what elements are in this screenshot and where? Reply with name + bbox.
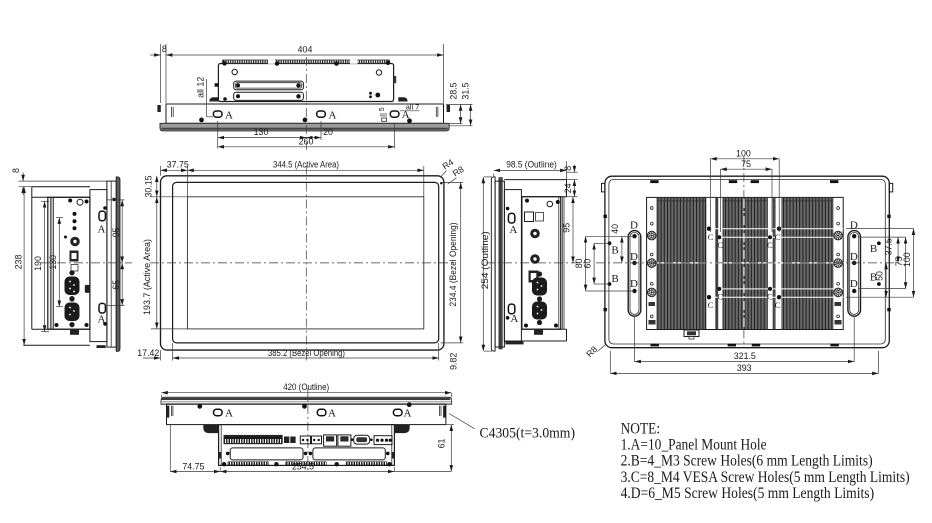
svg-text:4.D=6_M5 Screw Holes(5 mm Leng: 4.D=6_M5 Screw Holes(5 mm Length Limits) (621, 485, 875, 502)
svg-text:8: 8 (162, 44, 167, 54)
svg-text:75: 75 (741, 159, 751, 169)
svg-text:74.75: 74.75 (182, 461, 204, 471)
svg-text:344.5 (Active Area): 344.5 (Active Area) (273, 160, 339, 170)
svg-text:95: 95 (111, 227, 121, 237)
svg-text:260: 260 (299, 136, 314, 146)
svg-text:all 12: all 12 (195, 77, 205, 98)
svg-text:C: C (767, 292, 773, 302)
svg-text:C4305(t=3.0mm): C4305(t=3.0mm) (480, 426, 576, 442)
svg-text:2.B=4_M3 Screw Holes(6 mm Leng: 2.B=4_M3 Screw Holes(6 mm Length Limits) (621, 453, 873, 470)
svg-text:37.75: 37.75 (167, 160, 189, 170)
svg-text:420 (Outline): 420 (Outline) (283, 382, 329, 392)
svg-text:61: 61 (436, 439, 446, 449)
svg-text:C: C (767, 240, 773, 250)
svg-text:130: 130 (254, 127, 269, 137)
svg-text:50: 50 (874, 271, 884, 281)
svg-text:100: 100 (736, 148, 751, 158)
svg-text:D: D (630, 251, 638, 263)
svg-text:31.5: 31.5 (460, 82, 470, 99)
svg-text:28.5: 28.5 (449, 82, 459, 99)
svg-text:8: 8 (563, 166, 573, 171)
svg-text:190: 190 (33, 256, 43, 271)
svg-text:all 7: all 7 (406, 103, 420, 112)
svg-text:17.42: 17.42 (137, 348, 159, 358)
svg-text:254 (Outline): 254 (Outline) (480, 231, 490, 289)
svg-text:254.5: 254.5 (292, 461, 314, 471)
svg-text:60: 60 (582, 259, 592, 269)
svg-text:D: D (630, 220, 638, 232)
svg-text:C: C (775, 232, 781, 242)
svg-text:20: 20 (323, 127, 333, 137)
svg-text:C: C (717, 240, 723, 250)
svg-text:D: D (850, 278, 858, 290)
svg-text:1.A=10_Panel Mount Hole: 1.A=10_Panel Mount Hole (621, 437, 767, 454)
svg-text:A: A (225, 408, 233, 420)
svg-text:A: A (329, 110, 337, 122)
svg-text:193.7 (Active Area): 193.7 (Active Area) (142, 239, 152, 315)
svg-text:A: A (225, 110, 233, 122)
svg-text:C: C (708, 300, 714, 310)
svg-text:98.5 (Outline): 98.5 (Outline) (506, 159, 557, 169)
svg-text:8: 8 (11, 168, 21, 173)
svg-text:B: B (870, 243, 877, 255)
svg-text:404: 404 (298, 45, 313, 55)
svg-text:100: 100 (902, 252, 912, 267)
svg-text:65: 65 (111, 280, 121, 290)
svg-text:A: A (98, 224, 106, 236)
svg-text:234.4 (Bezel Opening): 234.4 (Bezel Opening) (448, 222, 458, 306)
svg-text:D: D (850, 251, 858, 263)
svg-text:385.2 (Bezel Opening): 385.2 (Bezel Opening) (268, 348, 345, 358)
svg-text:30.15: 30.15 (144, 175, 154, 197)
svg-text:95: 95 (562, 223, 572, 233)
svg-text:A: A (510, 313, 518, 325)
svg-text:321.5: 321.5 (734, 351, 756, 361)
svg-text:NOTE:: NOTE: (621, 421, 661, 438)
svg-text:37.5: 37.5 (884, 238, 894, 255)
svg-text:C: C (708, 232, 714, 242)
svg-text:3.C=8_M4 VESA Screw Holes(5 mm: 3.C=8_M4 VESA Screw Holes(5 mm Length Li… (621, 469, 910, 486)
svg-text:B: B (611, 244, 618, 256)
svg-text:B: B (611, 273, 618, 285)
svg-text:R8: R8 (584, 344, 599, 359)
svg-text:238: 238 (13, 255, 23, 270)
svg-text:40: 40 (610, 224, 620, 234)
svg-text:9.82: 9.82 (448, 353, 458, 370)
svg-text:5: 5 (379, 107, 386, 111)
svg-text:A: A (509, 224, 517, 236)
svg-text:D: D (850, 220, 858, 232)
svg-text:C: C (775, 300, 781, 310)
svg-text:A: A (404, 408, 412, 420)
svg-text:393: 393 (737, 363, 752, 373)
svg-text:C: C (717, 292, 723, 302)
svg-text:A: A (328, 408, 336, 420)
svg-text:D: D (630, 278, 638, 290)
svg-text:24: 24 (563, 183, 573, 193)
